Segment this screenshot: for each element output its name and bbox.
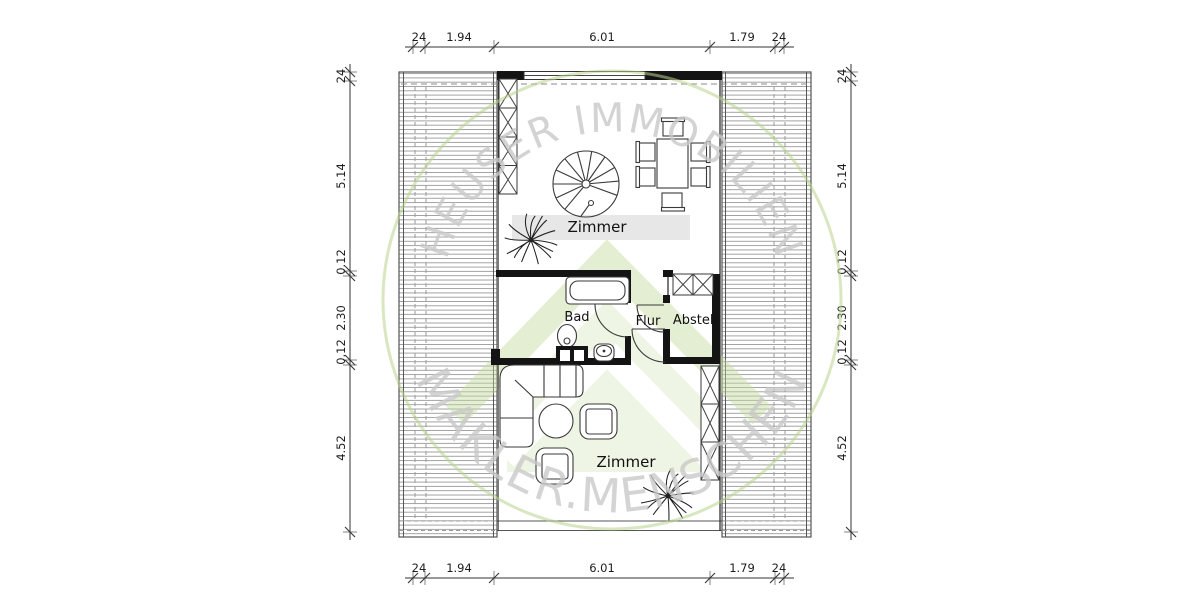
sink bbox=[558, 325, 577, 348]
dim-top-3: 1.79 bbox=[729, 30, 755, 44]
dim-top-4: 24 bbox=[772, 30, 787, 44]
partition-wall-abstell bbox=[673, 274, 713, 295]
dim-top-0: 24 bbox=[412, 30, 427, 44]
dim-right-0: 24 bbox=[835, 69, 849, 84]
dim-bottom-2: 6.01 bbox=[589, 561, 615, 575]
dim-bottom-3: 1.79 bbox=[729, 561, 755, 575]
toilet bbox=[594, 344, 614, 361]
bath-cabinet bbox=[556, 346, 588, 362]
dim-bottom-1: 1.94 bbox=[446, 561, 472, 575]
coffee-table bbox=[539, 404, 573, 438]
dimension-chain-top: 24 1.94 6.01 1.79 24 bbox=[405, 30, 794, 54]
dimension-chain-bottom: 24 1.94 6.01 1.79 24 bbox=[405, 561, 794, 585]
dimension-chain-right: 24 5.14 0.12 2.30 0.12 4.52 bbox=[835, 64, 858, 540]
dim-bottom-4: 24 bbox=[772, 561, 787, 575]
dim-left-2: 0.12 bbox=[334, 249, 348, 275]
dim-left-1: 5.14 bbox=[334, 163, 348, 189]
floorplan-page: Zimmer Bad Flur Abstell Zimmer 24 1.94 6… bbox=[0, 0, 1200, 600]
dim-top-1: 1.94 bbox=[446, 30, 472, 44]
label-flur: Flur bbox=[636, 314, 661, 329]
label-bad: Bad bbox=[564, 310, 589, 325]
bathtub bbox=[566, 277, 629, 304]
dim-right-5: 4.52 bbox=[835, 435, 849, 461]
dim-left-4: 0.12 bbox=[334, 339, 348, 365]
dim-left-3: 2.30 bbox=[334, 305, 348, 331]
dim-top-2: 6.01 bbox=[589, 30, 615, 44]
dimension-chain-left: 24 5.14 0.12 2.30 0.12 4.52 bbox=[334, 64, 357, 540]
dim-left-0: 24 bbox=[334, 69, 348, 84]
floorplan-drawing: Zimmer Bad Flur Abstell Zimmer 24 1.94 6… bbox=[0, 0, 1200, 600]
dim-bottom-0: 24 bbox=[412, 561, 427, 575]
dim-left-5: 4.52 bbox=[334, 435, 348, 461]
armchair-right bbox=[580, 404, 617, 439]
dim-right-1: 5.14 bbox=[835, 163, 849, 189]
label-zimmer-top: Zimmer bbox=[567, 218, 627, 236]
label-abstell: Abstell bbox=[673, 313, 717, 328]
